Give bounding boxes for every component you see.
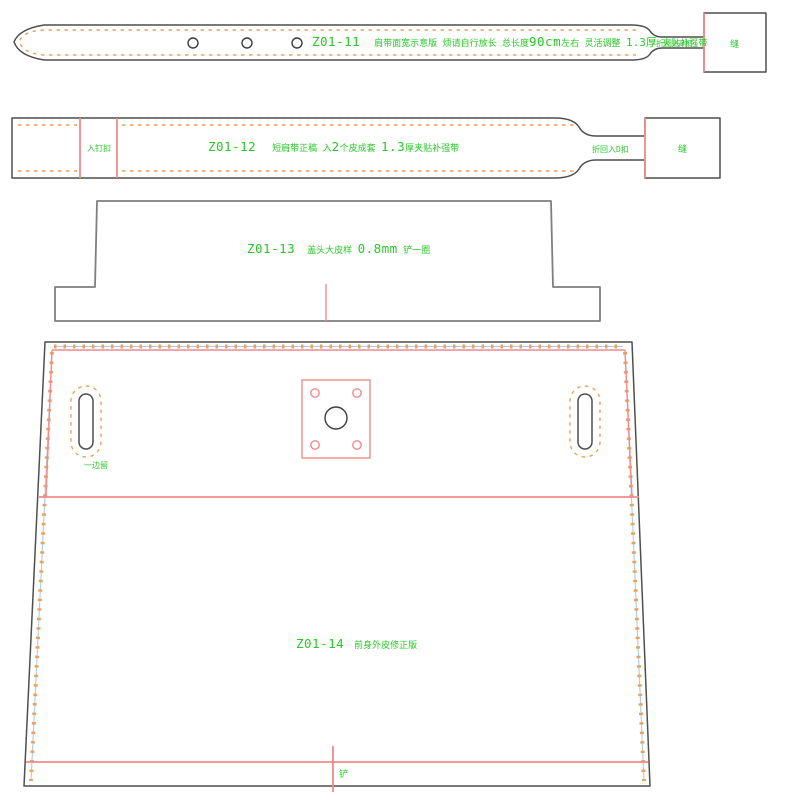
left-slot-stitch-outline <box>71 386 101 457</box>
piece-body: 一边留 Z01-14前身外皮修正版 铲 <box>24 342 650 792</box>
rivet-hole <box>353 389 361 397</box>
left-strap-slot <box>79 394 93 449</box>
strap-annotation: Z01-12短肩带正稿 入2个皮成套 1.3厚夹贴补强带 <box>208 139 459 154</box>
bottom-skive-label: 铲 <box>339 768 348 780</box>
strap-end-label: 缝 <box>678 143 687 155</box>
belt-hole <box>292 38 302 48</box>
strap-fold-label: 折回入D扣 <box>592 144 629 154</box>
cad-drawing-canvas: Z01-11肩带面宽示意版 烦请自行放长 总长度90cm左右 灵活调整 1.3厚… <box>0 0 800 800</box>
belt-annotation: Z01-11肩带面宽示意版 烦请自行放长 总长度90cm左右 灵活调整 1.3厚… <box>312 34 707 49</box>
piece-flap: Z01-13盖头大皮样 0.8mm 铲一圈 <box>55 201 600 321</box>
strap-buckle-label: 入钉扣 <box>87 143 111 153</box>
flap-outline <box>55 201 600 321</box>
center-post-hole <box>325 407 347 429</box>
rivet-hole <box>353 441 361 449</box>
rivet-hole <box>311 441 319 449</box>
body-right-seam-line <box>625 350 632 497</box>
belt-end-label: 缝 <box>730 38 739 50</box>
belt-fold-label: 折回入D扣 <box>656 38 693 48</box>
piece-belt: Z01-11肩带面宽示意版 烦请自行放长 总长度90cm左右 灵活调整 1.3厚… <box>14 13 766 72</box>
slot-note-label: 一边留 <box>84 460 108 470</box>
right-slot-stitch-outline <box>570 386 600 457</box>
body-annotation: Z01-14前身外皮修正版 <box>296 636 417 651</box>
belt-hole <box>242 38 252 48</box>
pattern-sheet: Z01-11肩带面宽示意版 烦请自行放长 总长度90cm左右 灵活调整 1.3厚… <box>0 0 800 800</box>
flap-annotation: Z01-13盖头大皮样 0.8mm 铲一圈 <box>247 241 430 256</box>
piece-strap: 入钉扣 Z01-12短肩带正稿 入2个皮成套 1.3厚夹贴补强带 折回入D扣 缝 <box>12 118 720 178</box>
rivet-hole <box>311 389 319 397</box>
right-strap-slot <box>578 394 592 449</box>
belt-hole <box>188 38 198 48</box>
body-left-seam-line <box>46 350 52 497</box>
